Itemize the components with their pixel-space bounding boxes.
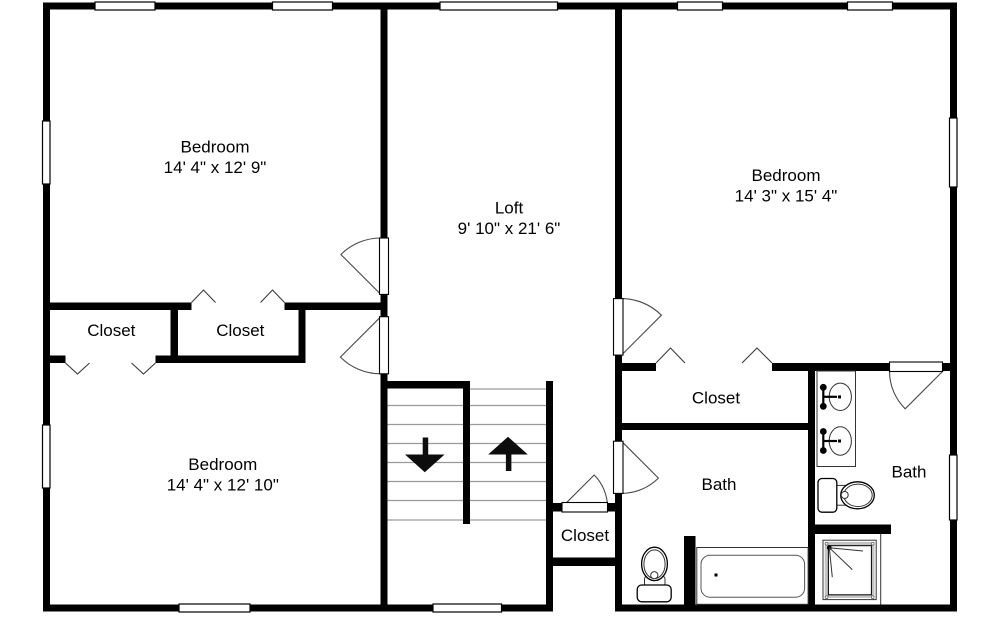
svg-text:Closet: Closet (216, 321, 264, 340)
svg-text:Bath: Bath (892, 463, 927, 482)
svg-text:14' 3" x 15' 4": 14' 3" x 15' 4" (735, 187, 838, 206)
svg-text:Closet: Closet (692, 389, 740, 408)
svg-text:14' 4" x 12' 9": 14' 4" x 12' 9" (164, 158, 267, 177)
svg-text:9' 10" x 21' 6": 9' 10" x 21' 6" (458, 219, 561, 238)
svg-text:Closet: Closet (561, 526, 609, 545)
svg-text:14' 4" x 12' 10": 14' 4" x 12' 10" (167, 476, 279, 495)
svg-text:Bath: Bath (702, 475, 737, 494)
svg-text:Bedroom: Bedroom (188, 455, 257, 474)
svg-text:Loft: Loft (495, 199, 524, 218)
svg-text:Bedroom: Bedroom (752, 166, 821, 185)
svg-text:Bedroom: Bedroom (181, 138, 250, 157)
svg-text:Closet: Closet (87, 321, 135, 340)
